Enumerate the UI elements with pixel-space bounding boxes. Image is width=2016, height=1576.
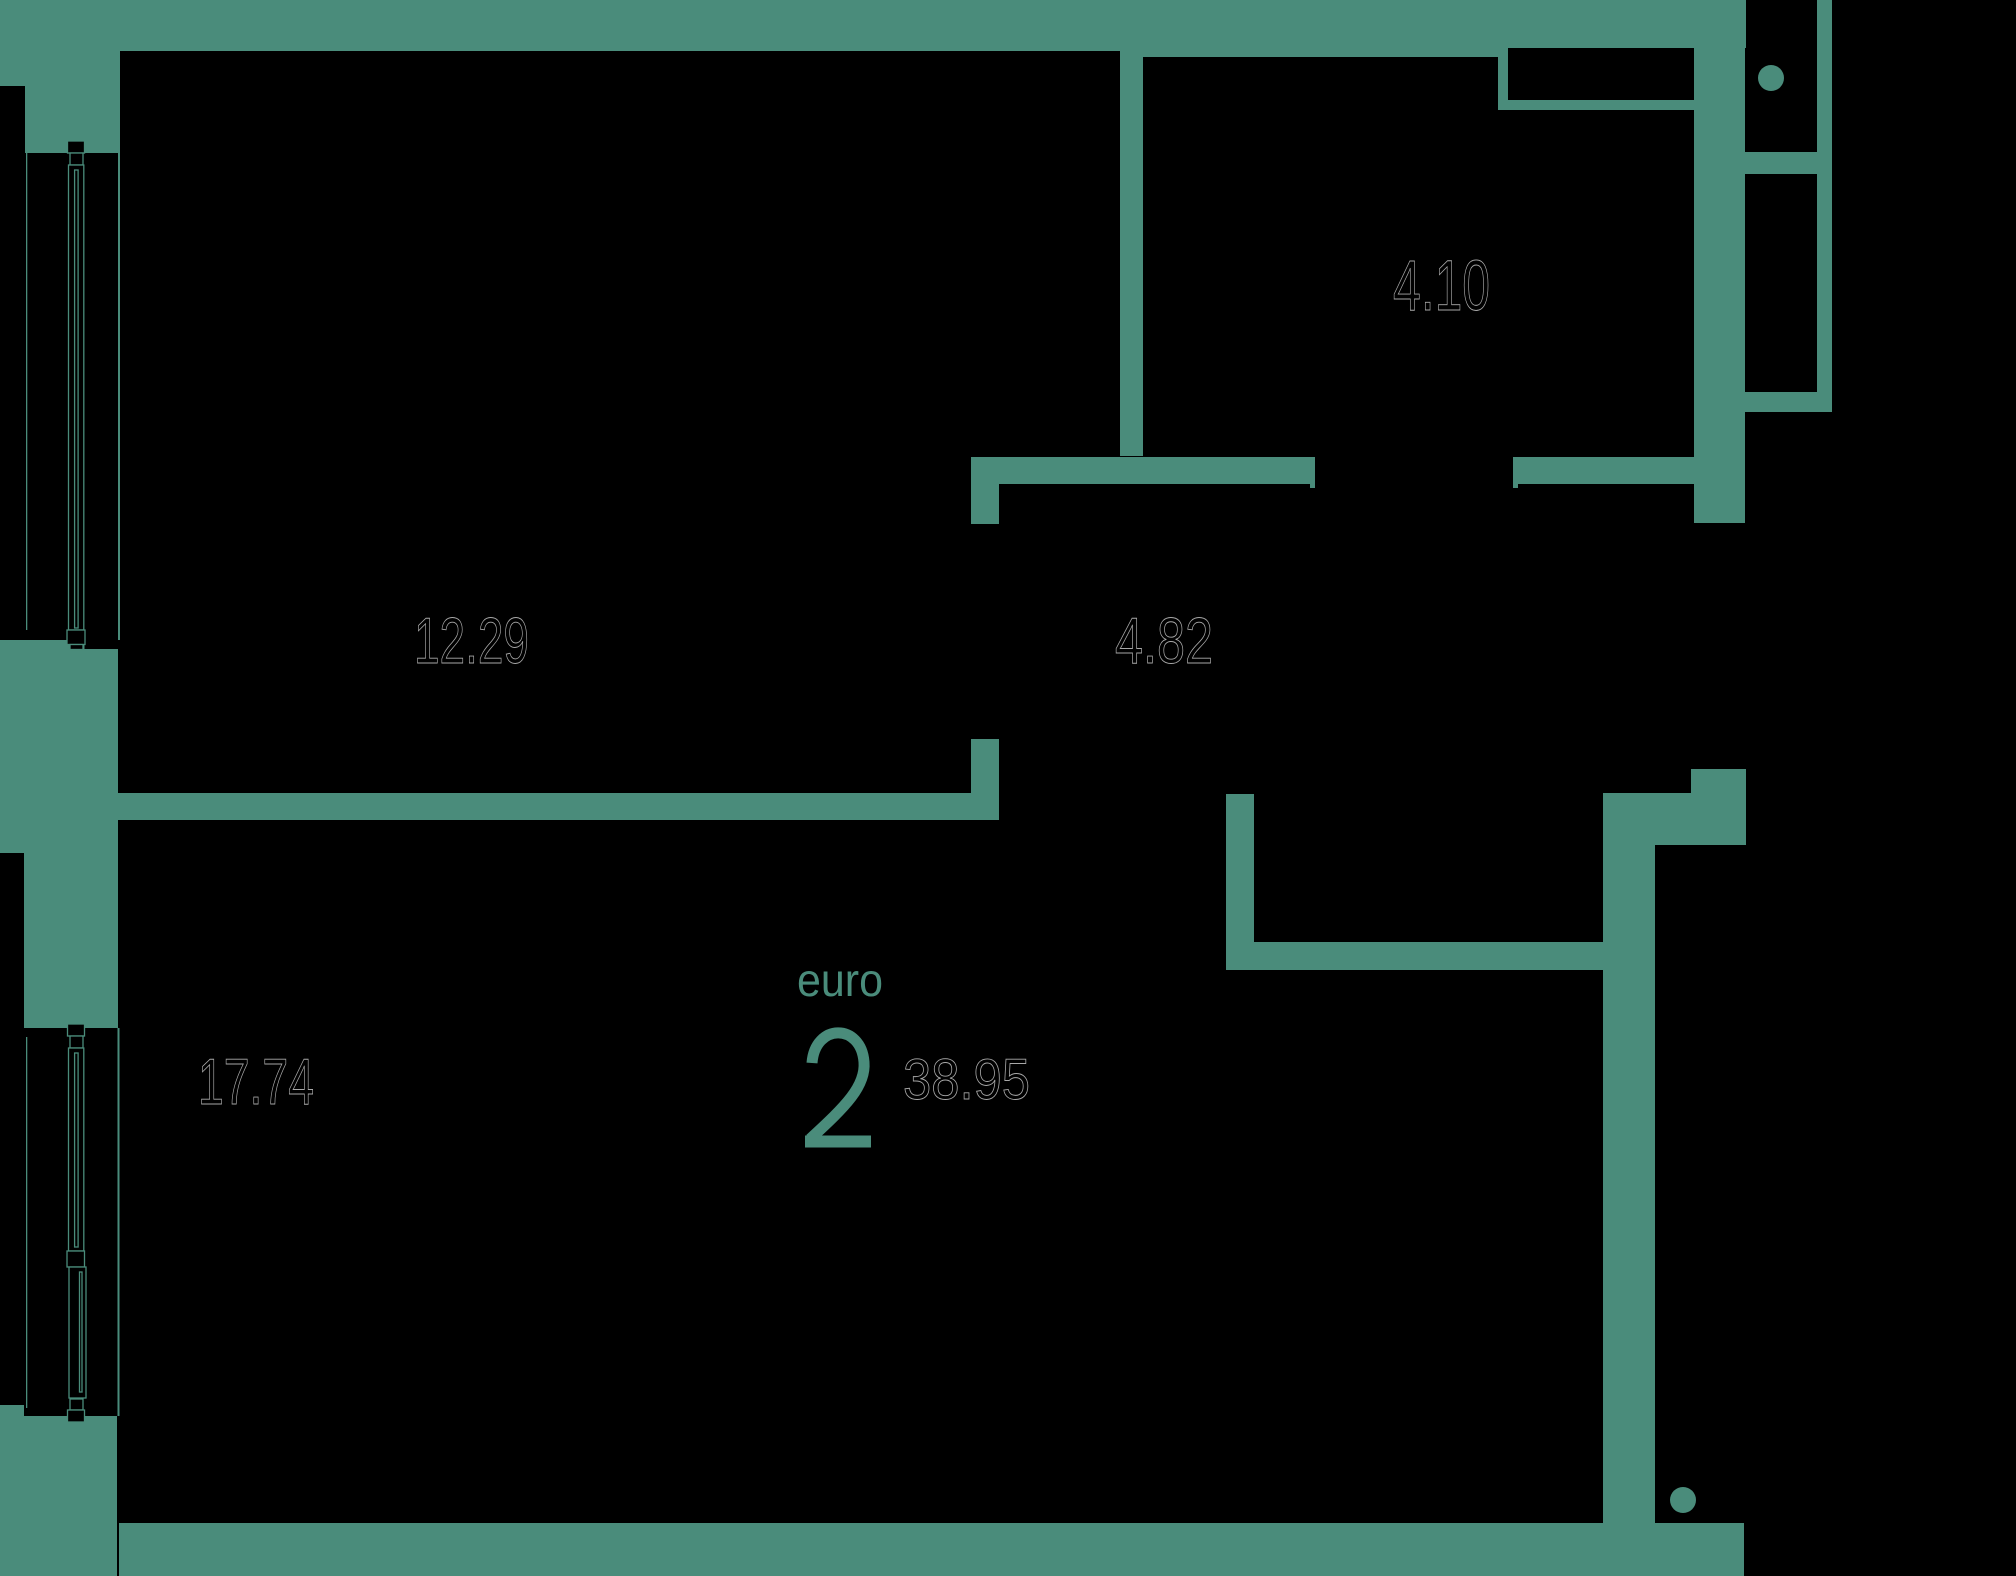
svg-text:17.74: 17.74 — [198, 1046, 314, 1118]
svg-text:4.10: 4.10 — [1393, 247, 1490, 326]
svg-text:4.82: 4.82 — [1115, 605, 1213, 677]
svg-text:euro: euro — [797, 954, 883, 1006]
svg-text:38.95: 38.95 — [903, 1048, 1030, 1112]
svg-text:12.29: 12.29 — [414, 605, 529, 677]
